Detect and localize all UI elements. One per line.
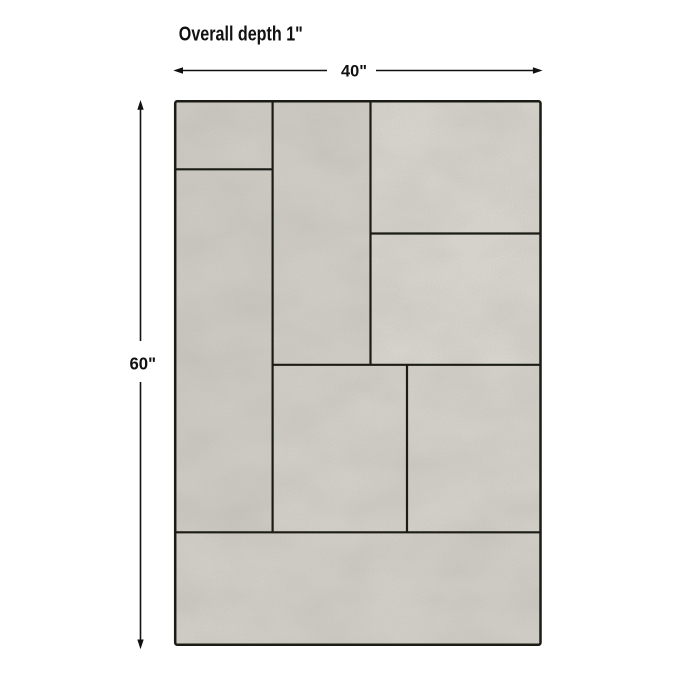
- svg-text:60": 60": [130, 354, 157, 374]
- svg-text:40": 40": [341, 61, 367, 80]
- svg-text:Overall depth 1": Overall depth 1": [179, 24, 303, 46]
